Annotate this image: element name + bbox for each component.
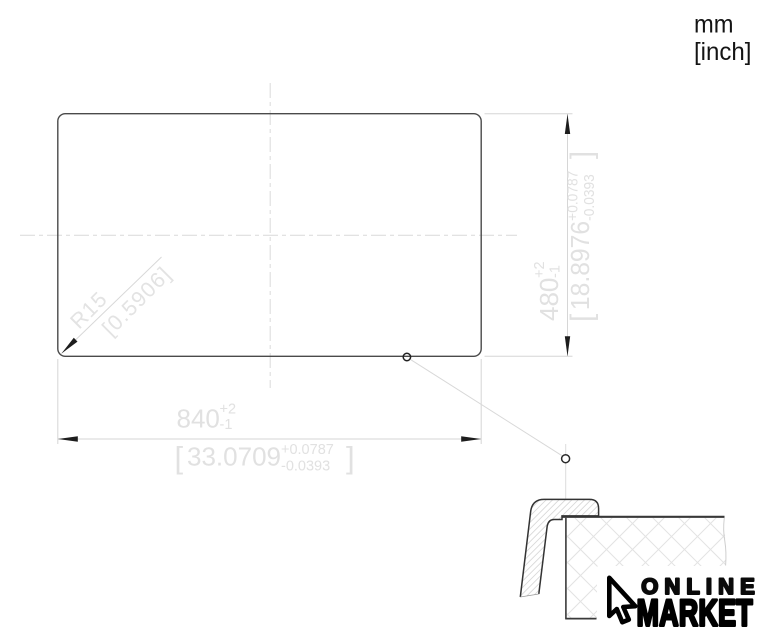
svg-text:-0.0393: -0.0393 xyxy=(281,459,330,475)
svg-text:-0.0393: -0.0393 xyxy=(581,174,597,221)
svg-text:]: ] xyxy=(565,151,599,159)
svg-text:+2: +2 xyxy=(220,402,237,418)
svg-text:-1: -1 xyxy=(220,417,233,433)
svg-text:33.0709: 33.0709 xyxy=(187,442,281,472)
svg-text:18.8976: 18.8976 xyxy=(566,221,595,310)
svg-text:-1: -1 xyxy=(548,265,564,278)
svg-text:MARKET: MARKET xyxy=(637,592,753,633)
svg-text:]: ] xyxy=(346,440,355,475)
svg-text:[inch]: [inch] xyxy=(694,38,752,66)
svg-text:[: [ xyxy=(175,440,184,475)
svg-text:+2: +2 xyxy=(532,261,548,278)
svg-text:480: 480 xyxy=(534,278,564,321)
svg-text:mm: mm xyxy=(694,11,734,39)
svg-text:+0.0787: +0.0787 xyxy=(564,171,580,221)
svg-text:[: [ xyxy=(565,313,599,322)
svg-text:840: 840 xyxy=(177,404,220,434)
svg-text:+0.0787: +0.0787 xyxy=(281,442,334,458)
